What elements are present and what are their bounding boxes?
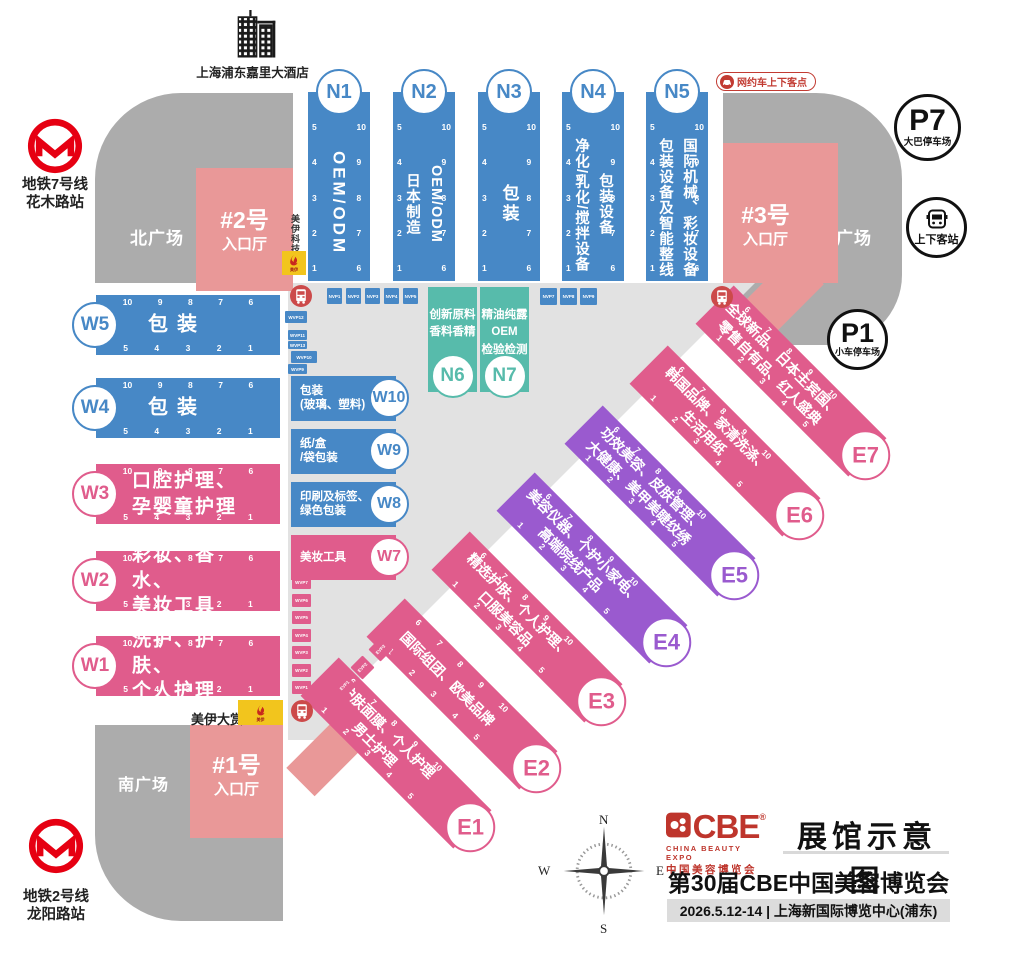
hall-id: W3 — [81, 483, 110, 505]
entrance-hall-3: #3号 入口厅 — [723, 143, 838, 283]
hall-n6: 创新原料 香料香精N6 — [428, 287, 477, 392]
metro-line7-line: 地铁7号线 — [0, 176, 110, 194]
bay-number: 1 — [248, 343, 253, 353]
vip-room-wvp3: WVP3 — [292, 646, 311, 659]
entrance-hall-1-id: #1号 — [212, 753, 261, 778]
hall-n4: 54321109876包装设备 净化/乳化/搅拌设备N4 — [562, 92, 624, 281]
parking-p1-label: 小车停车场 — [835, 345, 880, 358]
hall-w1: 10987654321洗护、护肤、 个人护理W1 — [96, 636, 280, 696]
hall-category-label: 纸/盒 /袋包装 — [300, 437, 338, 467]
sponsor-logo-south: 美伊 — [238, 700, 283, 725]
car-icon — [720, 75, 734, 89]
bay-number: 10 — [123, 553, 132, 563]
compass-w: W — [538, 863, 550, 879]
hall-w5: 10987654321包装W5 — [96, 295, 280, 355]
hall-category-label: 美妆工具 — [300, 550, 346, 565]
vip-room-wvp10: WVP10 — [291, 351, 317, 363]
bus-stop-icon — [290, 285, 312, 307]
hall-category-label: 印刷及标签、 绿色包装 — [300, 490, 369, 520]
bay-number: 5 — [397, 122, 402, 132]
hall-id: W7 — [377, 548, 401, 566]
hall-category-label: 洗护、护肤、 个人护理 — [132, 628, 254, 705]
parking-p1-badge: P1 小车停车场 — [827, 309, 888, 370]
bay-number: 4 — [482, 157, 487, 167]
hall-id-badge-n5: N5 — [654, 69, 700, 115]
bay-number: 5 — [471, 732, 481, 742]
bay-numbers: 54321 — [482, 122, 487, 273]
bay-number: 2 — [217, 426, 222, 436]
dropoff-station-badge: 上下客站 — [906, 197, 967, 258]
vip-room-nvp5: NVP5 — [403, 288, 418, 304]
bay-number: 10 — [611, 122, 620, 132]
bay-number: 8 — [357, 193, 366, 203]
hall-id-badge-w2: W2 — [72, 558, 118, 604]
hall-id: E3 — [588, 688, 615, 714]
metro-line2-line: 地铁2号线 — [1, 888, 111, 906]
cbe-logo-english: CHINA BEAUTY EXPO — [666, 844, 766, 862]
hall-w7: 美妆工具W7 — [291, 535, 396, 580]
bay-number: 9 — [476, 680, 486, 690]
bay-number: 5 — [650, 122, 655, 132]
cbe-mark-icon — [666, 812, 691, 838]
shuttle-icon — [925, 209, 949, 231]
entrance-hall-2-id: #2号 — [220, 208, 269, 233]
sponsor-brand-mini: 美伊 — [257, 718, 265, 722]
bay-number: 7 — [527, 228, 536, 238]
vip-room-wvp2: WVP2 — [292, 664, 311, 677]
hall-category-label: OEM/ODM — [326, 138, 353, 269]
hotel-label: 上海浦东嘉里大酒店 — [165, 66, 340, 82]
bay-number: 8 — [188, 380, 193, 390]
hall-category-label: 口腔护理、 孕婴童护理 — [132, 468, 254, 519]
bay-number: 6 — [527, 263, 536, 273]
hall-id-badge-e6: E6 — [764, 480, 835, 551]
bay-number: 9 — [158, 380, 163, 390]
bay-numbers: 109876 — [527, 122, 536, 273]
date-venue-bar: 2026.5.12-14 | 上海新国际博览中心(浦东) — [667, 899, 950, 922]
dropoff-station-label: 上下客站 — [915, 231, 959, 247]
bay-number: 7 — [218, 380, 223, 390]
vip-room-wvp13: WVP13 — [288, 341, 307, 349]
bay-numbers: 109876 — [110, 297, 266, 307]
bay-number: 9 — [527, 157, 536, 167]
bay-number: 5 — [123, 343, 128, 353]
metro-line7-icon — [27, 118, 83, 174]
hall-id: E1 — [457, 814, 484, 840]
vip-room-wvp6: WVP6 — [292, 594, 311, 607]
parking-p7-label: 大巴停车场 — [904, 134, 952, 148]
bay-numbers: 54321 — [110, 343, 266, 353]
bay-number: 10 — [123, 466, 132, 476]
metro-line7-label: 地铁7号线 花木路站 — [0, 176, 110, 212]
hall-category-label: 包装 — [132, 312, 254, 339]
bay-number: 3 — [186, 426, 191, 436]
hall-category-label: 创新原料 香料香精 — [428, 307, 477, 342]
north-plaza-label: 北广场 — [130, 224, 184, 249]
metro-line7-station: 花木路站 — [0, 194, 110, 212]
vip-room-nvp7: NVP7 — [540, 288, 557, 305]
compass-n: N — [599, 812, 608, 828]
bay-number: 3 — [482, 193, 487, 203]
compass-e: E — [656, 863, 664, 879]
hall-w9: 纸/盒 /袋包装W9 — [291, 429, 396, 474]
hall-id: E5 — [721, 562, 748, 588]
hall-category-label: 彩妆、香水、 美妆工具 — [132, 543, 254, 620]
rideshare-pickup-label: 网约车上下客点 — [737, 74, 807, 89]
bus-stop-icon — [711, 286, 733, 308]
vip-room-wvp12: WVP12 — [285, 311, 307, 323]
hall-id: W9 — [377, 442, 401, 460]
vip-room-wvp11: WVP11 — [288, 330, 307, 340]
bay-number: 10 — [123, 380, 132, 390]
parking-p7-id: P7 — [909, 107, 946, 134]
bay-number: 4 — [154, 343, 159, 353]
hotel-icon — [225, 10, 279, 62]
hall-id: N4 — [580, 81, 606, 104]
hall-id: E7 — [852, 442, 879, 468]
bay-number: 6 — [248, 297, 253, 307]
vip-room-nvp4: NVP4 — [384, 288, 399, 304]
bay-number: 3 — [186, 343, 191, 353]
hall-id-badge-w1: W1 — [72, 643, 118, 689]
bay-number: 8 — [527, 193, 536, 203]
bay-number: 3 — [312, 193, 317, 203]
hall-id: N7 — [492, 365, 516, 387]
parking-p1-id: P1 — [841, 321, 874, 345]
vip-room-nvp1: NVP1 — [327, 288, 342, 304]
hall-id-badge-w7: W7 — [369, 537, 409, 577]
hall-n5: 54321109876国际机械、彩妆设备 包装设备及智能整线N5 — [646, 92, 708, 281]
hall-id: N3 — [496, 81, 522, 104]
bay-numbers: 109876 — [357, 122, 366, 273]
bus-stop-icon — [291, 700, 313, 722]
vip-room-wvp1: WVP1 — [292, 681, 311, 694]
hall-id-badge-e4: E4 — [631, 607, 702, 678]
vip-room-wvp4: WVP4 — [292, 629, 311, 642]
south-plaza-label: 南广场 — [118, 771, 169, 795]
metro-line2-station: 龙阳路站 — [1, 906, 111, 924]
bay-number: 9 — [357, 157, 366, 167]
hall-id: W2 — [81, 570, 110, 592]
hall-category-label: 国际机械、彩妆设备 包装设备及智能整线 — [653, 138, 701, 269]
bay-number: 2 — [407, 667, 417, 677]
hall-id-badge-e7: E7 — [830, 420, 901, 491]
entrance-hall-1-label: 入口厅 — [214, 778, 259, 799]
sponsor-brand-mini: 美伊 — [290, 268, 298, 272]
hall-id-badge-w9: W9 — [369, 431, 409, 471]
bay-number: 1 — [482, 263, 487, 273]
bay-number: 7 — [218, 297, 223, 307]
hall-id: W1 — [81, 655, 110, 677]
metro-line2-label: 地铁2号线 龙阳路站 — [1, 888, 111, 924]
hall-n2: 54321109876OEM/ODM 日本制造N2 — [393, 92, 455, 281]
hall-n3: 54321109876包装N3 — [478, 92, 540, 281]
bay-number: 5 — [312, 122, 317, 132]
hall-id-badge-w4: W4 — [72, 385, 118, 431]
hall-id-badge-n2: N2 — [401, 69, 447, 115]
hall-id: E4 — [653, 629, 680, 655]
vip-room-nvp9: NVP9 — [580, 288, 597, 305]
cbe-logo-text: CBE — [693, 812, 760, 842]
hall-id-badge-w5: W5 — [72, 302, 118, 348]
hall-id: N6 — [440, 365, 464, 387]
bay-number: 5 — [482, 122, 487, 132]
title-rule — [783, 851, 949, 854]
metro-line2-icon — [28, 818, 84, 874]
vip-room-nvp8: NVP8 — [560, 288, 577, 305]
bay-number: 1 — [248, 426, 253, 436]
hall-id-badge-n7: N7 — [483, 354, 527, 398]
bay-number: 8 — [455, 659, 465, 669]
vip-room-wvp5: WVP5 — [292, 611, 311, 624]
compass-rose-icon — [556, 823, 652, 919]
hall-n1: 54321109876OEM/ODMN1 — [308, 92, 370, 281]
bay-number: 7 — [357, 228, 366, 238]
bay-number: 5 — [123, 684, 128, 694]
bay-number: 9 — [158, 297, 163, 307]
bay-number: 6 — [248, 380, 253, 390]
expo-title: 第30届CBE中国美容博览会 — [666, 864, 951, 898]
hall-id-badge-w8: W8 — [369, 484, 409, 524]
bay-number: 10 — [527, 122, 536, 132]
bay-number: 5 — [123, 426, 128, 436]
hall-category-label: 包装 (玻璃、塑料) — [300, 384, 365, 414]
hall-id: E2 — [523, 755, 550, 781]
vip-room-wvp9: WVP9 — [288, 364, 307, 374]
parking-p7-badge: P7 大巴停车场 — [894, 94, 961, 161]
hall-id-badge-n4: N4 — [570, 69, 616, 115]
bay-number: 5 — [123, 512, 128, 522]
hall-w4: 10987654321包装W4 — [96, 378, 280, 438]
cbe-logo-reg: ® — [759, 812, 766, 822]
hall-id-badge-e5: E5 — [699, 540, 770, 611]
hall-category-label: 包装设备 净化/乳化/搅拌设备 — [569, 138, 617, 269]
hall-category-label: 包装 — [496, 138, 523, 269]
bay-number: 5 — [566, 122, 571, 132]
bay-number: 4 — [154, 426, 159, 436]
bay-number: 7 — [434, 638, 444, 648]
bay-numbers: 109876 — [110, 380, 266, 390]
sponsor-logo-north: 美伊 — [282, 251, 306, 275]
rideshare-pickup-badge: 网约车上下客点 — [716, 72, 816, 91]
entrance-hall-2: #2号 入口厅 — [196, 168, 293, 291]
hall-category-label: 精油纯露 OEM 检验检测 — [480, 307, 529, 359]
hall-id: E6 — [786, 502, 813, 528]
hall-id: W8 — [377, 495, 401, 513]
hall-w8: 印刷及标签、 绿色包装W8 — [291, 482, 396, 527]
hall-category-label: OEM/ODM 日本制造 — [400, 138, 448, 269]
entrance-hall-2-label: 入口厅 — [222, 233, 267, 254]
hall-id-badge-e3: E3 — [566, 666, 637, 737]
flame-icon — [254, 704, 268, 718]
bay-number: 2 — [482, 228, 487, 238]
hall-n7: 精油纯露 OEM 检验检测N7 — [480, 287, 529, 392]
bay-numbers: 54321 — [110, 426, 266, 436]
hall-id-badge-e2: E2 — [501, 733, 572, 804]
vip-room-nvp3: NVP3 — [365, 288, 380, 304]
hall-id: N1 — [326, 81, 352, 104]
sponsor-award-label: 美伊大赏 — [191, 709, 243, 728]
bay-number: 10 — [123, 297, 132, 307]
hall-category-label: 包装 — [132, 395, 254, 422]
bay-number: 4 — [312, 157, 317, 167]
hall-id: W10 — [373, 389, 406, 407]
bay-number: 1 — [312, 263, 317, 273]
hall-w3: 10987654321口腔护理、 孕婴童护理W3 — [96, 464, 280, 524]
hall-id: W5 — [81, 314, 110, 336]
hall-id: W4 — [81, 397, 110, 419]
flame-icon — [287, 254, 301, 268]
hall-id-badge-w3: W3 — [72, 471, 118, 517]
bay-number: 10 — [695, 122, 704, 132]
bay-number: 2 — [312, 228, 317, 238]
hall-id: N2 — [411, 81, 437, 104]
bay-number: 6 — [413, 617, 423, 627]
bay-number: 10 — [497, 700, 511, 714]
entrance-hall-1: #1号 入口厅 — [190, 725, 283, 838]
bay-number: 10 — [442, 122, 451, 132]
bay-number: 2 — [217, 343, 222, 353]
bay-numbers: 54321 — [312, 122, 317, 273]
entrance-hall-3-id: #3号 — [741, 203, 790, 228]
bay-number: 10 — [357, 122, 366, 132]
bay-number: 6 — [357, 263, 366, 273]
hall-id-badge-e1: E1 — [435, 792, 506, 863]
hall-id-badge-w10: W10 — [369, 378, 409, 418]
hall-w10: 包装 (玻璃、塑料)W10 — [291, 376, 396, 421]
vip-room-nvp2: NVP2 — [346, 288, 361, 304]
expo-floorplan-map: 北广场 东广场 南广场 #2号 入口厅 #3号 入口厅 #1号 入口厅 5432… — [0, 0, 1019, 954]
hall-id-badge-n6: N6 — [431, 354, 475, 398]
sponsor-tech-label: 美伊科技 — [289, 214, 302, 254]
hall-w2: 10987654321彩妆、香水、 美妆工具W2 — [96, 551, 280, 611]
compass — [556, 823, 652, 919]
hall-id: N5 — [664, 81, 690, 104]
bay-number: 8 — [188, 297, 193, 307]
entrance-hall-3-label: 入口厅 — [743, 228, 788, 249]
compass-s: S — [600, 921, 607, 937]
hall-id-badge-n3: N3 — [486, 69, 532, 115]
bay-number: 3 — [428, 689, 438, 699]
bay-number: 10 — [123, 638, 132, 648]
bay-number: 5 — [123, 599, 128, 609]
bay-number: 4 — [450, 710, 460, 720]
vip-room-wvp7: WVP7 — [292, 576, 311, 589]
